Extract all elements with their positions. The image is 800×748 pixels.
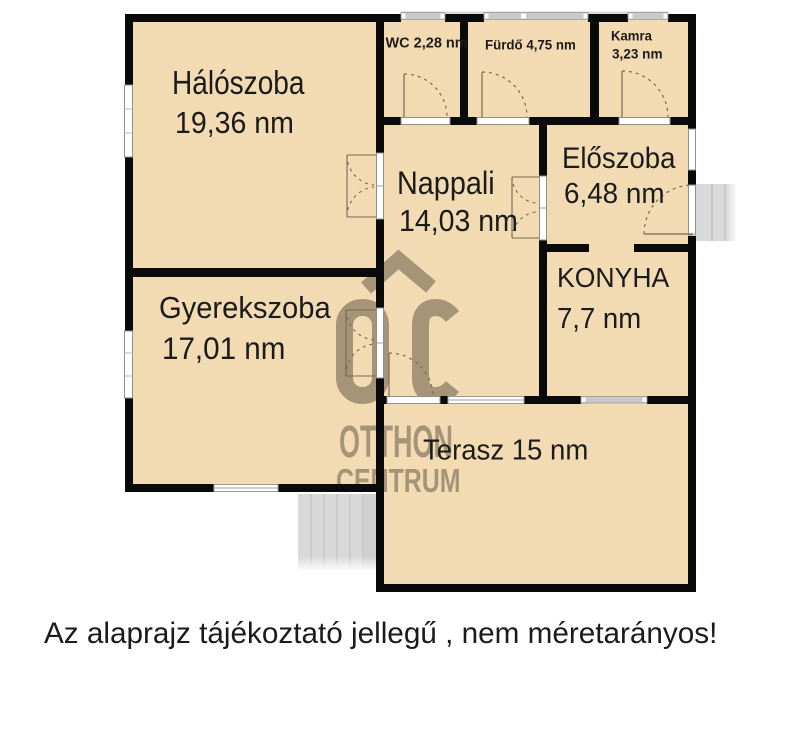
svg-text:Nappali: Nappali: [397, 166, 495, 202]
svg-text:19,36 nm: 19,36 nm: [175, 106, 294, 140]
svg-text:7,7 nm: 7,7 nm: [557, 301, 641, 334]
svg-text:17,01 nm: 17,01 nm: [162, 331, 285, 366]
svg-text:KONYHA: KONYHA: [557, 261, 670, 293]
svg-text:Fürdő 4,75 nm: Fürdő 4,75 nm: [485, 37, 576, 52]
svg-text:14,03 nm: 14,03 nm: [399, 204, 518, 238]
svg-text:Hálószoba: Hálószoba: [172, 65, 305, 102]
svg-text:3,23 nm: 3,23 nm: [612, 46, 663, 61]
svg-text:Az alaprajz tájékoztató jelleg: Az alaprajz tájékoztató jellegű , nem mé…: [44, 617, 717, 650]
svg-text:WC 2,28 nm: WC 2,28 nm: [386, 36, 468, 52]
svg-text:6,48 nm: 6,48 nm: [564, 177, 665, 210]
svg-text:Terasz 15 nm: Terasz 15 nm: [423, 433, 588, 466]
svg-text:Kamra: Kamra: [611, 28, 652, 43]
svg-text:Előszoba: Előszoba: [562, 142, 676, 175]
svg-text:Gyerekszoba: Gyerekszoba: [159, 291, 331, 325]
